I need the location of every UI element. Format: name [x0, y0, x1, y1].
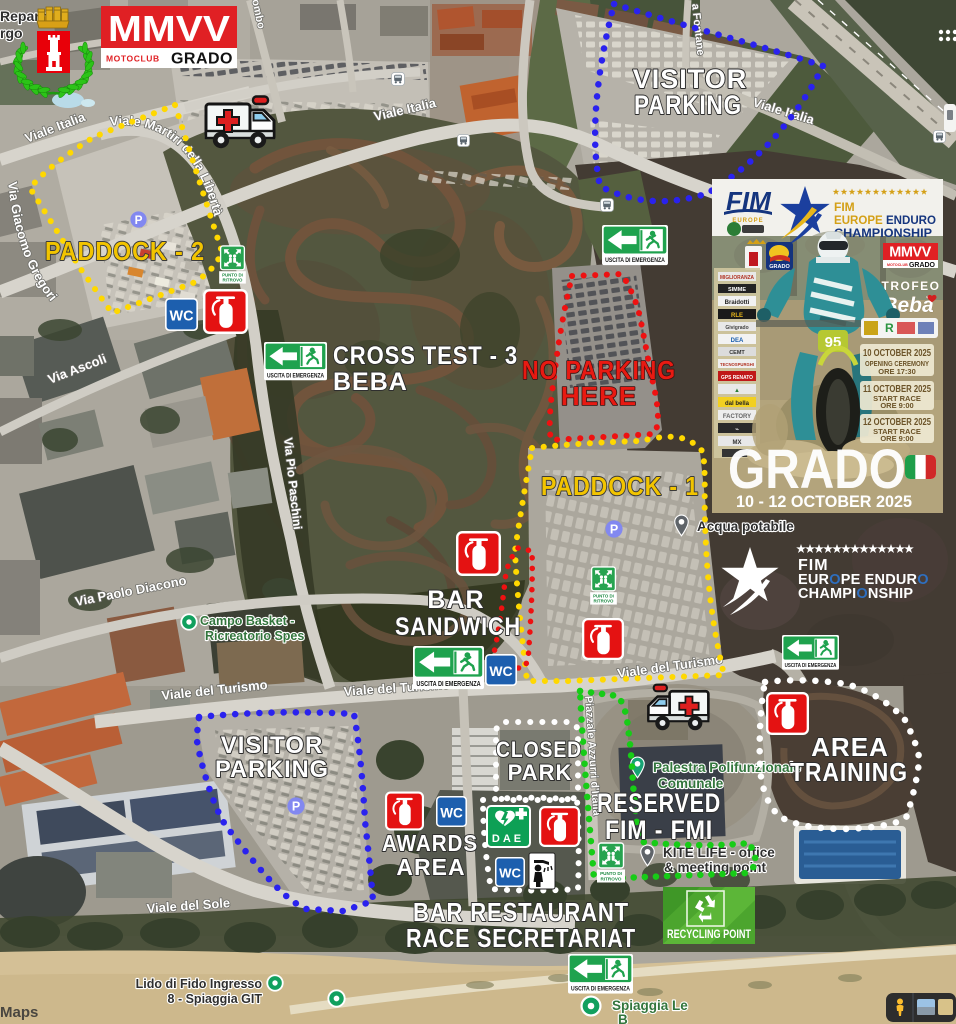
svg-text:SANDWICH: SANDWICH — [395, 613, 521, 641]
svg-text:PARKING: PARKING — [215, 756, 329, 783]
svg-text:DAE: DAE — [492, 833, 524, 845]
svg-text:PADDOCK - 2: PADDOCK - 2 — [45, 236, 205, 266]
svg-text:MOTOCLUB: MOTOCLUB — [887, 263, 908, 267]
svg-text:BEBA: BEBA — [333, 368, 408, 396]
svg-text:SIMME: SIMME — [728, 287, 746, 293]
svg-text:ORE 17:30: ORE 17:30 — [878, 367, 916, 376]
svg-text:FACTORY: FACTORY — [723, 414, 751, 420]
svg-text:B: B — [618, 1012, 628, 1024]
svg-text:GRADO: GRADO — [171, 51, 233, 68]
svg-text:TRAINING: TRAINING — [790, 757, 908, 787]
svg-text:Braidotti: Braidotti — [725, 300, 750, 306]
svg-text:GRADO: GRADO — [728, 437, 906, 500]
svg-text:TECNOSPURGHI: TECNOSPURGHI — [720, 362, 754, 367]
svg-text:CLOSED: CLOSED — [496, 737, 582, 762]
svg-text:RECYCLING POINT: RECYCLING POINT — [667, 929, 751, 941]
svg-text:Lido di Fido Ingresso: Lido di Fido Ingresso — [136, 977, 263, 991]
svg-text:10 - 12 OCTOBER 2025: 10 - 12 OCTOBER 2025 — [736, 492, 912, 511]
svg-text:CROSS TEST - 3: CROSS TEST - 3 — [333, 342, 518, 370]
svg-text:ORE 9:00: ORE 9:00 — [880, 401, 913, 410]
svg-text:MOTOCLUB: MOTOCLUB — [106, 54, 160, 64]
svg-text:PARK: PARK — [508, 760, 573, 785]
svg-text:MIGLIORANZA: MIGLIORANZA — [720, 275, 754, 281]
svg-text:AWARDS: AWARDS — [382, 830, 478, 856]
svg-text:FIM - FMI: FIM - FMI — [605, 815, 713, 845]
svg-text:CHAMPIONSHIP: CHAMPIONSHIP — [834, 226, 932, 240]
svg-text:Palestra Polifunzionale: Palestra Polifunzionale — [653, 760, 801, 775]
svg-text:EUROPE ENDURO: EUROPE ENDURO — [834, 213, 936, 227]
svg-text:GRADO: GRADO — [909, 262, 936, 269]
svg-text:⌁: ⌁ — [735, 427, 739, 433]
svg-text:GRADO: GRADO — [769, 264, 790, 270]
svg-text:BAR: BAR — [427, 586, 484, 614]
svg-text:AREA: AREA — [396, 854, 465, 880]
svg-text:MMVV: MMVV — [108, 8, 230, 49]
svg-text:PADDOCK - 1: PADDOCK - 1 — [541, 471, 699, 501]
svg-text:HERE: HERE — [561, 381, 637, 411]
svg-text:PARKING: PARKING — [634, 90, 742, 120]
svg-text:CEMT: CEMT — [729, 350, 745, 356]
svg-text:RACE SECRETARIAT: RACE SECRETARIAT — [406, 923, 636, 953]
svg-text:DEA: DEA — [731, 338, 744, 344]
svg-text:dal bella: dal bella — [725, 401, 750, 407]
svg-text:CHAMPIONSHIP: CHAMPIONSHIP — [798, 586, 913, 602]
svg-text:VISITOR: VISITOR — [221, 732, 324, 759]
svg-text:FIM: FIM — [834, 200, 855, 214]
svg-text:GPS RENATO: GPS RENATO — [721, 375, 753, 381]
svg-text:RLE: RLE — [731, 313, 743, 319]
svg-text:R: R — [885, 321, 894, 335]
svg-text:rgo: rgo — [0, 25, 23, 41]
svg-text:Campo Basket -: Campo Basket - — [200, 614, 294, 628]
svg-text:10 OCTOBER 2025: 10 OCTOBER 2025 — [863, 348, 931, 359]
svg-text:RESERVED: RESERVED — [597, 788, 721, 818]
svg-text:Acqua potabile: Acqua potabile — [697, 519, 794, 534]
svg-text:Ricreatorio Spes: Ricreatorio Spes — [205, 629, 304, 643]
svg-text:MMVV: MMVV — [889, 245, 931, 261]
svg-text:8 - Spiaggia GIT: 8 - Spiaggia GIT — [168, 992, 263, 1006]
svg-text:Maps: Maps — [0, 1004, 38, 1021]
svg-text:Spiaggia Le: Spiaggia Le — [612, 998, 688, 1013]
svg-text:TROFEO: TROFEO — [882, 279, 941, 293]
svg-text:Givigrado: Givigrado — [725, 325, 748, 331]
svg-text:▲: ▲ — [734, 388, 740, 394]
